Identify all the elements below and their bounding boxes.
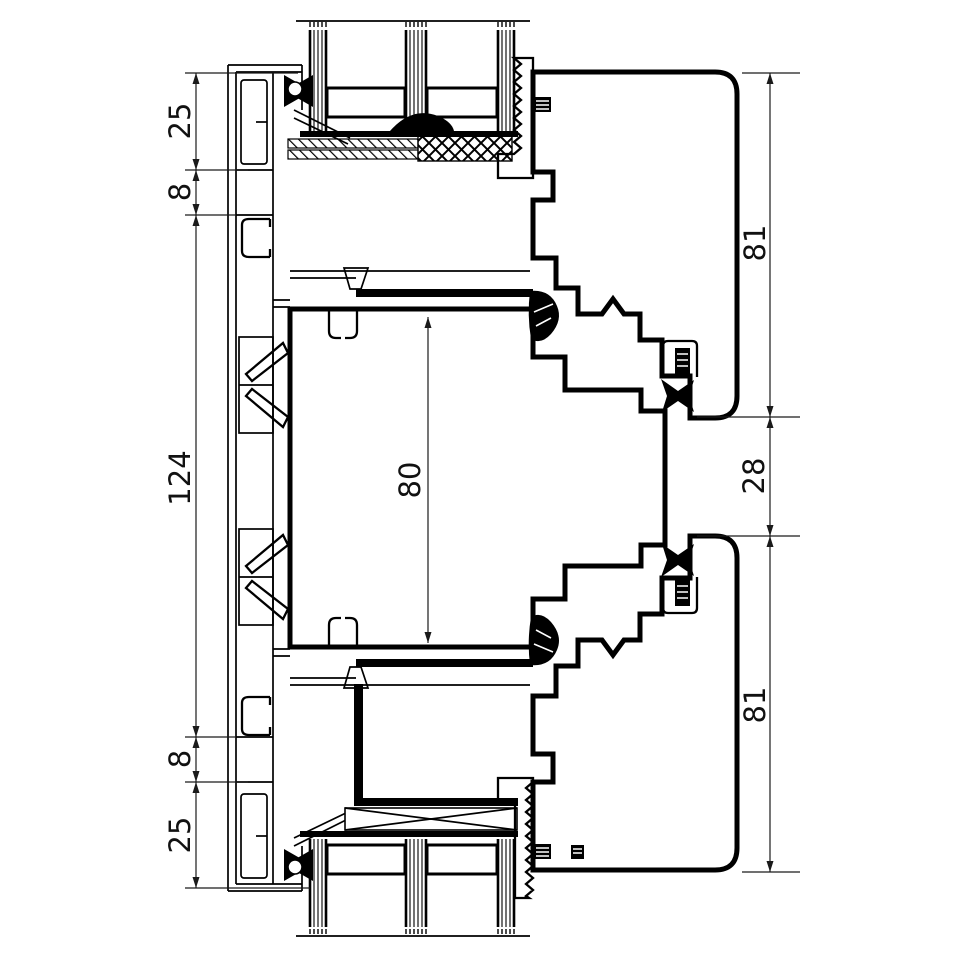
glass-break-ticks-bottom <box>310 929 514 934</box>
dim-label-left-124: 124 <box>163 450 197 505</box>
clip-roller-top <box>288 82 302 96</box>
glazing-spacer-bottom-right <box>427 845 497 874</box>
dim-label-center-80: 80 <box>393 462 427 499</box>
glazing-bead-bottom <box>498 778 533 898</box>
glass-edge-bar-bottom <box>300 831 518 837</box>
brush-seal-housing-lower <box>239 529 288 625</box>
dim-label-right-81-top: 81 <box>738 225 772 262</box>
glazing-spacer-top-right <box>427 88 497 117</box>
clip-roller-bottom <box>288 860 302 874</box>
sealant-hatch-strip-2 <box>288 150 418 159</box>
gasket-carrier-arm-bottom <box>356 659 533 667</box>
hook-gasket-top <box>675 348 690 374</box>
profile-section-drawing: 25 8 124 8 25 80 81 28 81 <box>0 0 960 960</box>
hook-gasket-bottom <box>675 580 690 606</box>
brush-seal-housing-upper <box>239 337 288 433</box>
leaf-gasket-bottom <box>529 615 559 665</box>
glazing-unit-bottom <box>296 778 533 936</box>
glazing-web-bottom <box>354 684 363 804</box>
cad-drawing-page: 25 8 124 8 25 80 81 28 81 <box>0 0 960 960</box>
dim-label-right-28: 28 <box>737 458 771 495</box>
dim-label-left-8-top: 8 <box>163 183 197 201</box>
gasket-arm-lines-bottom <box>290 678 530 685</box>
glass-break-ticks-top <box>310 22 514 27</box>
butterfly-gasket-top <box>661 379 694 412</box>
frame-clip-slot-top <box>242 219 270 257</box>
gasket-arm-lines-top <box>290 271 530 278</box>
sealant-hatch-strip-1 <box>288 139 418 148</box>
leaf-gasket-top <box>529 291 559 341</box>
dim-label-right-81-bottom: 81 <box>738 687 772 724</box>
glazing-arm-bottom <box>354 798 518 806</box>
dim-label-left-25-bottom: 25 <box>163 817 197 854</box>
frame-clip-slot-bottom <box>242 697 270 735</box>
mullion-chamber-80 <box>290 309 665 647</box>
dim-label-left-8-bottom: 8 <box>163 750 197 768</box>
glazing-spacer-bottom-left <box>327 845 405 874</box>
gasket-carrier-arm-top <box>356 289 533 297</box>
frame-webs <box>236 170 273 782</box>
glazing-unit-top <box>288 21 533 178</box>
glazing-spacer-top-left <box>327 88 405 117</box>
sash-bottom-gasket-tab-2 <box>571 845 584 859</box>
dim-label-left-25-top: 25 <box>163 103 197 140</box>
butterfly-gasket-bottom <box>661 544 694 577</box>
